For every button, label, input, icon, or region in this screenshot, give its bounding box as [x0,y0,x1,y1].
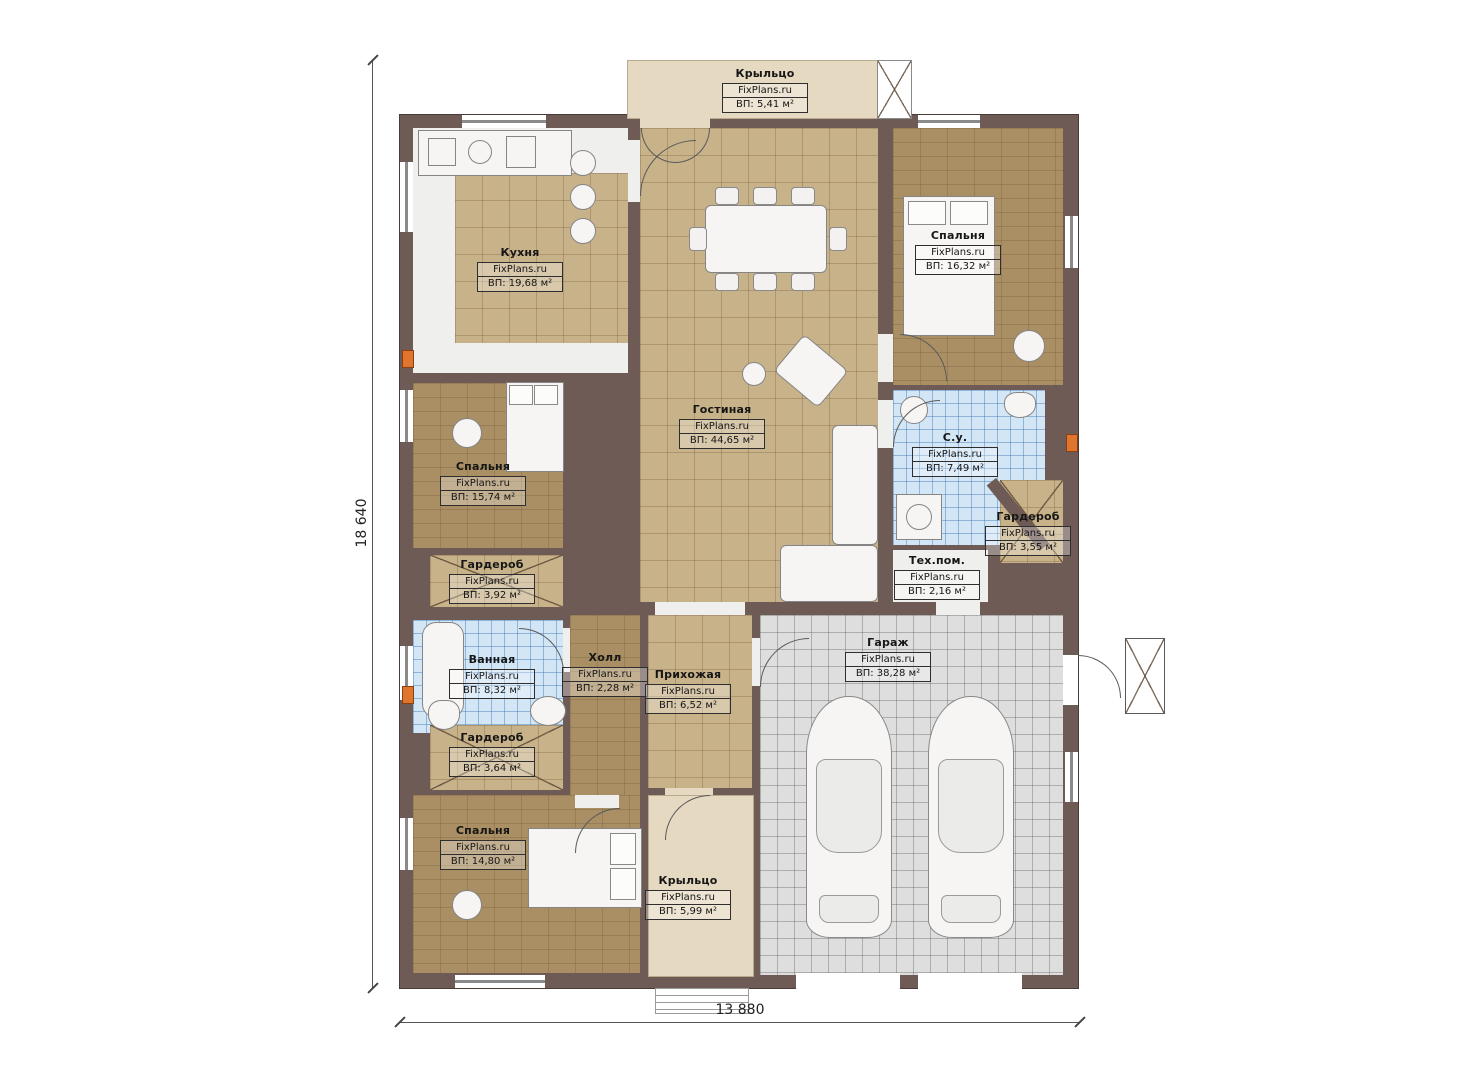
room-label-wardrobe-bottom: Гардероб FixPlans.ru ВП: 3,64 м² [437,732,547,777]
radiator-marker [402,350,414,368]
room-area: ВП: 3,92 м² [450,588,534,603]
garage-gate-opening [918,973,1022,989]
room-name: Крыльцо [710,68,820,81]
sofa-icon [832,425,878,545]
dimension-height: 18 640 [354,473,370,573]
room-label-bedroom-tr: Спальня FixPlans.ru ВП: 16,32 м² [903,230,1013,275]
dimension-line-vertical [372,60,373,988]
chair-icon [452,890,482,920]
room-label-entry: Прихожая FixPlans.ru ВП: 6,52 м² [633,669,743,714]
sink-icon [530,696,566,726]
chair-icon [452,418,482,448]
floor-plan-canvas: Крыльцо FixPlans.ru ВП: 5,41 м² Кухня Fi… [0,0,1474,1080]
window [400,390,413,442]
door-opening [1063,655,1078,705]
room-label-wardrobe-right: Гардероб FixPlans.ru ВП: 3,55 м² [973,511,1083,556]
room-name: Прихожая [633,669,743,682]
pillow-icon [509,385,533,405]
chair-icon [791,273,815,291]
room-name: Крыльцо [633,875,743,888]
site-watermark: FixPlans.ru [441,841,525,855]
radiator-marker [1066,434,1078,452]
chair-icon [715,273,739,291]
site-watermark: FixPlans.ru [680,420,764,434]
garage-gate-opening [796,973,900,989]
pillow-icon [950,201,988,225]
bar-stool-icon [570,150,596,176]
sink-icon [468,140,492,164]
room-label-su: С.у. FixPlans.ru ВП: 7,49 м² [900,432,1010,477]
room-name: Спальня [903,230,1013,243]
chair-icon [829,227,847,251]
room-name: Ванная [437,654,547,667]
window [918,115,980,128]
room-area: ВП: 38,28 м² [846,666,930,681]
car-icon [806,696,892,938]
door-opening [640,115,710,128]
room-name: Гардероб [437,559,547,572]
chair-icon [753,273,777,291]
fridge-icon [506,136,536,168]
window [400,162,413,232]
toilet-icon [1004,392,1036,418]
room-area: ВП: 15,74 м² [441,490,525,505]
door-opening [936,602,980,615]
site-watermark: FixPlans.ru [450,670,534,684]
room-label-bedroom-left: Спальня FixPlans.ru ВП: 15,74 м² [428,461,538,506]
chair-icon [791,187,815,205]
wide-opening [655,602,745,615]
site-watermark: FixPlans.ru [723,84,807,98]
room-name: Гараж [833,637,943,650]
room-name: Спальня [428,825,538,838]
room-area: ВП: 19,68 м² [478,276,562,291]
site-watermark: FixPlans.ru [450,575,534,589]
room-label-bedroom-bottom: Спальня FixPlans.ru ВП: 14,80 м² [428,825,538,870]
exterior-door-swing [1078,655,1121,698]
site-watermark: FixPlans.ru [478,263,562,277]
site-watermark: FixPlans.ru [913,448,997,462]
dimension-width: 13 880 [690,1002,790,1018]
site-watermark: FixPlans.ru [450,748,534,762]
window-symbol [1125,638,1165,714]
room-label-garage: Гараж FixPlans.ru ВП: 38,28 м² [833,637,943,682]
room-name: Холл [550,652,660,665]
room-label-porch-top: Крыльцо FixPlans.ru ВП: 5,41 м² [710,68,820,113]
window [462,115,546,128]
room-name: Гардероб [973,511,1083,524]
room-area: ВП: 5,41 м² [723,97,807,112]
room-label-porch-bottom: Крыльцо FixPlans.ru ВП: 5,99 м² [633,875,743,920]
door-opening [665,788,713,795]
dining-table-icon [705,205,827,273]
dimension-line-horizontal [400,1022,1080,1023]
toilet-icon [428,700,460,730]
room-area: ВП: 3,55 м² [986,540,1070,555]
pillow-icon [908,201,946,225]
door-opening [628,140,640,202]
room-area: ВП: 8,32 м² [450,683,534,698]
window [1065,752,1078,802]
room-label-tech: Тех.пом. FixPlans.ru ВП: 2,16 м² [882,555,992,600]
site-watermark: FixPlans.ru [646,891,730,905]
car-icon [928,696,1014,938]
room-name: Гостиная [667,404,777,417]
window [455,975,545,988]
site-watermark: FixPlans.ru [895,571,979,585]
room-name: Тех.пом. [882,555,992,568]
pillow-icon [534,385,558,405]
room-area: ВП: 14,80 м² [441,854,525,869]
door-opening [575,795,619,808]
room-name: Гардероб [437,732,547,745]
room-area: ВП: 3,64 м² [450,761,534,776]
porch-top-side-steps [877,60,912,119]
sofa-icon [780,545,878,602]
room-name: Спальня [428,461,538,474]
room-area: ВП: 44,65 м² [680,433,764,448]
window [400,818,413,870]
room-name: Кухня [465,247,575,260]
room-label-living: Гостиная FixPlans.ru ВП: 44,65 м² [667,404,777,449]
room-label-bath: Ванная FixPlans.ru ВП: 8,32 м² [437,654,547,699]
room-label-wardrobe-mid: Гардероб FixPlans.ru ВП: 3,92 м² [437,559,547,604]
stove-icon [428,138,456,166]
room-area: ВП: 5,99 м² [646,904,730,919]
room-label-kitchen: Кухня FixPlans.ru ВП: 19,68 м² [465,247,575,292]
bar-stool-icon [570,184,596,210]
site-watermark: FixPlans.ru [986,527,1070,541]
bar-stool-icon [570,218,596,244]
side-table-icon [742,362,766,386]
room-area: ВП: 16,32 м² [916,259,1000,274]
site-watermark: FixPlans.ru [646,685,730,699]
chair-icon [753,187,777,205]
door-opening [878,400,893,448]
room-area: ВП: 7,49 м² [913,461,997,476]
chair-icon [689,227,707,251]
door-opening [752,638,760,686]
radiator-marker [402,686,414,704]
dimension-tick [367,982,378,993]
chair-icon [715,187,739,205]
room-area: ВП: 2,16 м² [895,584,979,599]
window [1065,216,1078,268]
site-watermark: FixPlans.ru [916,246,1000,260]
shower-drain-icon [906,504,932,530]
dimension-tick [367,54,378,65]
site-watermark: FixPlans.ru [846,653,930,667]
door-opening [878,334,893,382]
site-watermark: FixPlans.ru [441,477,525,491]
room-hall-floor [570,615,640,795]
room-area: ВП: 6,52 м² [646,698,730,713]
chair-icon [1013,330,1045,362]
room-name: С.у. [900,432,1010,445]
